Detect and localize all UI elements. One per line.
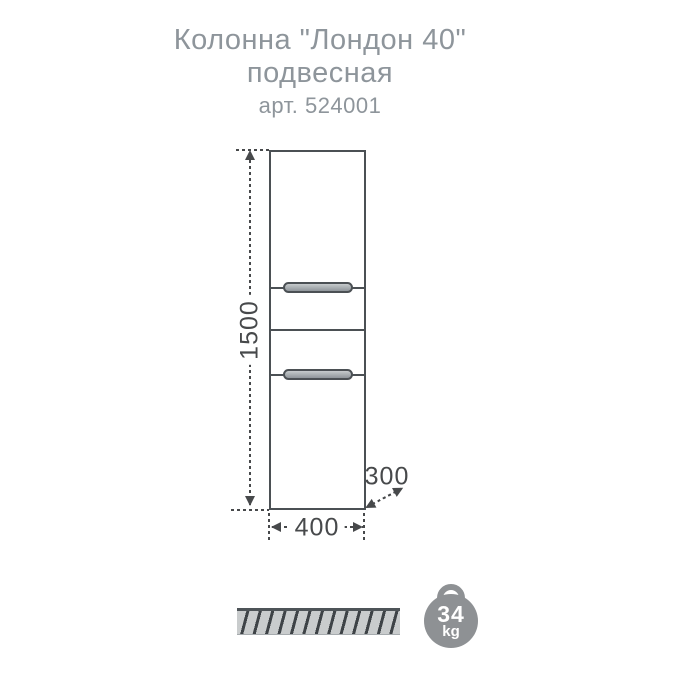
dimension-arrow-down-icon bbox=[245, 496, 255, 506]
mounting-surface-hatch bbox=[237, 608, 400, 635]
width-extension-line-left bbox=[268, 513, 270, 541]
cabinet-seam-middle bbox=[271, 329, 364, 331]
height-dimension-label: 1500 bbox=[236, 295, 265, 365]
width-dimension-label: 400 bbox=[290, 514, 345, 543]
kettlebell-weight-icon: 34 kg bbox=[423, 582, 479, 652]
door-handle-bottom bbox=[283, 369, 353, 380]
dimension-arrow-right-icon bbox=[353, 522, 363, 532]
door-handle-top bbox=[283, 282, 353, 293]
dimension-arrow-up-icon bbox=[245, 150, 255, 160]
kettlebell-ball-icon: 34 kg bbox=[424, 594, 478, 648]
article-number: арт. 524001 bbox=[0, 93, 640, 119]
depth-dimension-label: 300 bbox=[365, 463, 410, 492]
product-dimension-diagram: Колонна "Лондон 40" подвесная арт. 52400… bbox=[0, 0, 690, 690]
weight-unit: kg bbox=[442, 625, 460, 639]
height-extension-line-bottom bbox=[231, 509, 269, 511]
dimension-arrow-left-icon bbox=[271, 522, 281, 532]
product-name-line1: Колонна "Лондон 40" bbox=[0, 24, 640, 57]
product-name-line2: подвесная bbox=[0, 57, 640, 90]
page-title: Колонна "Лондон 40" подвесная арт. 52400… bbox=[0, 24, 640, 119]
weight-value: 34 bbox=[437, 604, 465, 625]
width-extension-line-right bbox=[363, 513, 365, 541]
